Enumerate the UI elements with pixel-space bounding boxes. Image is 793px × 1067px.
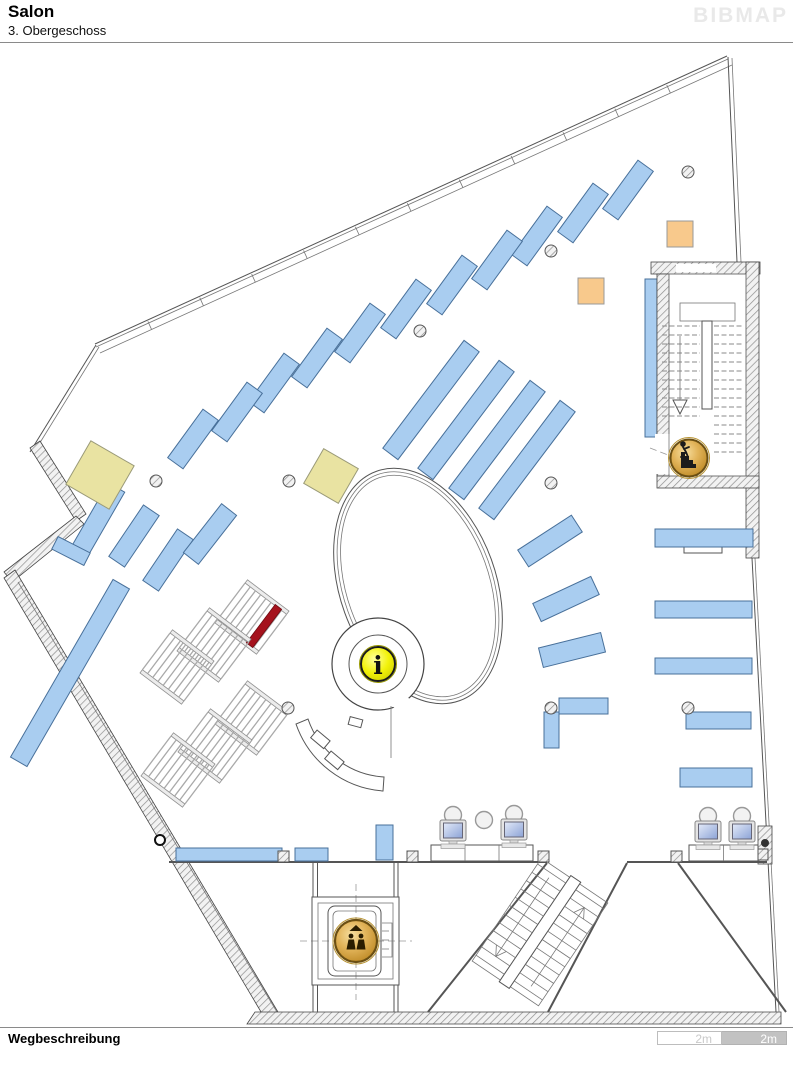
shelf bbox=[376, 825, 393, 860]
column bbox=[414, 325, 426, 337]
computer bbox=[501, 806, 527, 848]
shelf bbox=[680, 768, 752, 787]
shelf bbox=[335, 303, 386, 363]
column bbox=[283, 475, 295, 487]
shelf bbox=[143, 529, 193, 591]
shelf bbox=[383, 340, 479, 459]
curved-counter bbox=[296, 719, 384, 791]
shelf bbox=[512, 206, 563, 266]
compact-shelf-unit bbox=[215, 681, 289, 755]
tables bbox=[66, 221, 693, 509]
computer bbox=[695, 808, 721, 850]
shelf bbox=[655, 658, 752, 674]
column bbox=[682, 166, 694, 178]
chair bbox=[476, 812, 493, 829]
shelf bbox=[603, 160, 654, 220]
floor-plan-map[interactable]: i bbox=[0, 0, 793, 1067]
shelf bbox=[427, 255, 478, 315]
page-title: Salon bbox=[8, 2, 54, 22]
shelf bbox=[533, 576, 599, 621]
column bbox=[545, 245, 557, 257]
shelf bbox=[518, 515, 583, 567]
column bbox=[150, 475, 162, 487]
staircase-bottom-right bbox=[471, 857, 609, 1008]
table-orange bbox=[578, 278, 604, 304]
shelf bbox=[292, 328, 343, 388]
scale-segment-right: 2m bbox=[722, 1031, 787, 1045]
info-glyph: i bbox=[373, 651, 383, 680]
computer bbox=[440, 807, 466, 849]
shelf bbox=[183, 504, 236, 565]
shelf bbox=[655, 529, 753, 547]
shelf bbox=[539, 633, 606, 668]
computer-workstations bbox=[431, 806, 758, 862]
bibmap-logo: BIBMAP bbox=[693, 4, 788, 28]
shelf bbox=[249, 353, 300, 413]
shelf bbox=[109, 505, 159, 567]
footer: Wegbeschreibung 2m 2m bbox=[0, 1027, 793, 1067]
column bbox=[282, 702, 294, 714]
shelf bbox=[295, 848, 328, 861]
header: Salon 3. Obergeschoss BIBMAP bbox=[0, 0, 793, 43]
shelf bbox=[168, 409, 219, 469]
shelf bbox=[544, 712, 559, 748]
scale-segment-left: 2m bbox=[657, 1031, 722, 1045]
stairwell-top-right bbox=[645, 262, 760, 558]
shelf bbox=[645, 279, 657, 437]
table-orange bbox=[667, 221, 693, 247]
shelf bbox=[655, 601, 752, 618]
compact-shelving bbox=[140, 580, 289, 807]
shelf bbox=[558, 183, 609, 243]
compact-shelf-unit bbox=[215, 580, 289, 654]
info-icon[interactable]: i bbox=[360, 646, 397, 683]
column bbox=[545, 702, 557, 714]
wall-pillar bbox=[407, 851, 418, 862]
wall-pillar bbox=[757, 849, 768, 860]
shelf bbox=[472, 230, 523, 290]
bibmap-page: Salon 3. Obergeschoss BIBMAP bbox=[0, 0, 793, 1067]
floor-subtitle: 3. Obergeschoss bbox=[8, 23, 106, 38]
column bbox=[545, 477, 557, 489]
map-scale-bar: 2m 2m bbox=[657, 1031, 787, 1045]
door-knob bbox=[761, 839, 769, 847]
wall-pillar bbox=[671, 851, 682, 862]
directions-heading: Wegbeschreibung bbox=[8, 1031, 120, 1046]
shelf bbox=[212, 382, 263, 442]
shelf bbox=[176, 848, 282, 861]
wall-pillar bbox=[278, 851, 289, 862]
shelf bbox=[686, 712, 751, 729]
door-pivot bbox=[155, 835, 165, 845]
elevator-icon[interactable] bbox=[333, 918, 379, 964]
computer bbox=[729, 808, 755, 850]
table-yellow bbox=[304, 449, 359, 504]
column bbox=[682, 702, 694, 714]
shelf bbox=[559, 698, 608, 714]
stairs-down-icon[interactable] bbox=[669, 438, 710, 479]
wall-pillar bbox=[538, 851, 549, 862]
